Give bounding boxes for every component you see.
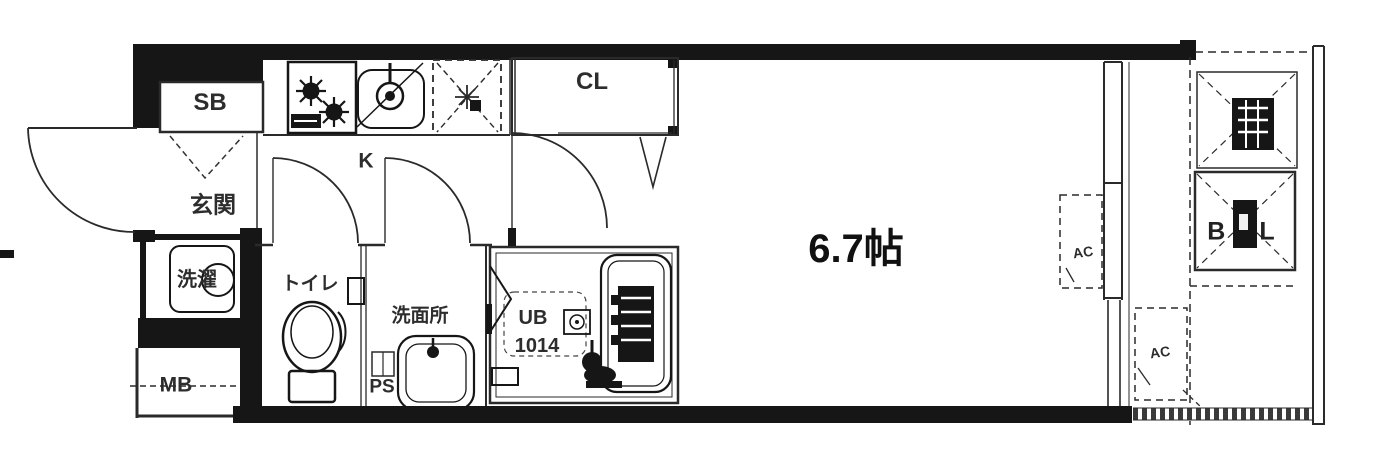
balcony-window <box>1104 62 1122 406</box>
stove-icon <box>288 62 356 133</box>
unit-bath-fixtures <box>486 255 671 392</box>
bath-door <box>490 266 511 332</box>
label-shoe-box: SB <box>193 91 226 115</box>
label-kitchen: K <box>358 151 373 172</box>
service-equipment-box <box>1197 72 1297 168</box>
floor-plan-linework <box>0 0 1385 465</box>
door-arcs <box>28 128 607 243</box>
washroom-door-arc <box>385 158 470 243</box>
label-closet: CL <box>576 70 608 94</box>
washbasin-icon <box>398 336 474 410</box>
main-room-door-arc <box>512 133 607 228</box>
label-meter-box: MB <box>160 375 193 396</box>
label-toilet: トイレ <box>281 275 338 294</box>
fridge-space-icon <box>433 60 501 135</box>
label-unit-bath: UB <box>519 308 548 328</box>
label-washroom: 洗面所 <box>391 307 448 326</box>
label-main-room-size: 6.7帖 <box>808 229 904 269</box>
label-laundry: 洗濯 <box>177 270 217 290</box>
floor-plan: SB 玄関 K CL 洗濯 MB トイレ 洗面所 PS UB 1014 6.7帖… <box>0 0 1385 465</box>
ac-indoor-box <box>1060 195 1102 288</box>
sink-icon <box>357 63 424 128</box>
toilet-icon <box>283 278 364 402</box>
entrance-door-arc <box>28 128 135 232</box>
label-ac-outdoor: AC <box>1149 344 1171 361</box>
label-unit-bath-size: 1014 <box>515 336 560 356</box>
water-heater-icon <box>1233 200 1257 248</box>
toilet-door-arc <box>273 158 358 243</box>
shoe-box-door-marks <box>170 136 243 178</box>
pipe-space-box <box>372 352 394 376</box>
closet-folding-door <box>558 133 672 187</box>
label-pipe-space: PS <box>369 378 394 397</box>
service-equipment-icon <box>1232 98 1274 150</box>
label-ac-indoor: AC <box>1072 244 1094 261</box>
label-entrance: 玄関 <box>190 194 236 217</box>
